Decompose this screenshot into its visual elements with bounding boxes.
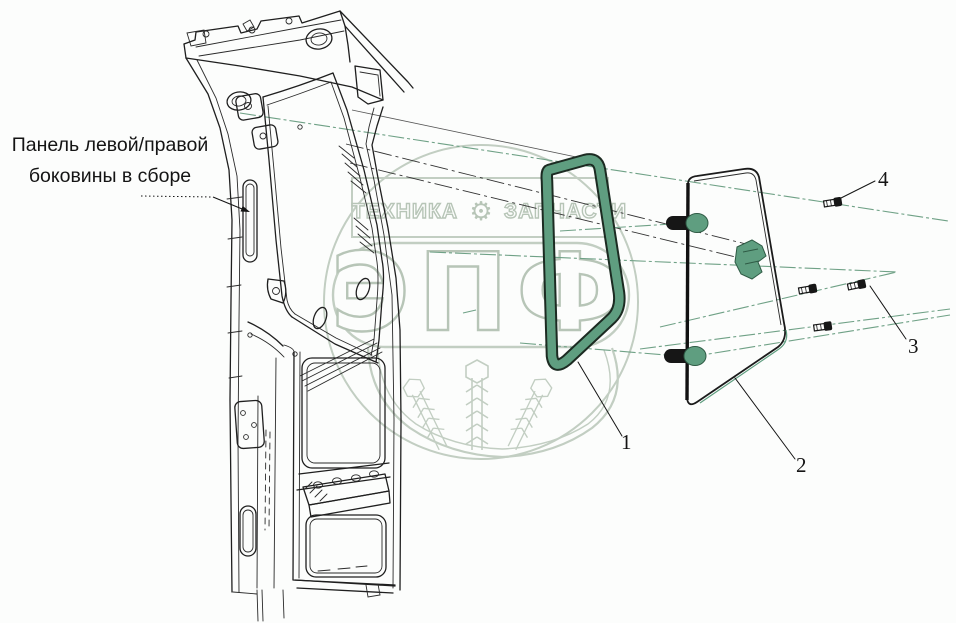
screw-icon-4 [823, 197, 842, 209]
mounting-screws [798, 197, 866, 333]
glass-center-clip [735, 240, 766, 279]
stud-bushing-bottom [684, 347, 706, 366]
diagram-canvas: ТЕХНИКА ⚙ ЗАПЧАСТИ ЭПФ [0, 0, 956, 623]
callout-2-number: 2 [796, 453, 807, 477]
part-label: Панель левой/правой боковины в сборе [12, 134, 250, 212]
watermark: ТЕХНИКА ⚙ ЗАПЧАСТИ ЭПФ [324, 145, 638, 459]
wheat-emblem [401, 360, 554, 452]
window-glass [664, 169, 787, 405]
screw-icon-3a [847, 279, 866, 292]
part-label-leader-dotted [141, 196, 213, 197]
callout-4: 4 [841, 167, 889, 198]
panel-roof-rail [184, 11, 413, 112]
callout-1-number: 1 [621, 430, 632, 454]
callout-4-leader [841, 181, 875, 198]
callout-3-leader [870, 286, 906, 339]
panel-door-opening [257, 352, 395, 621]
callout-2: 2 [735, 378, 807, 477]
part-label-arrowhead [241, 206, 251, 212]
callout-1: 1 [578, 362, 632, 454]
callout-4-number: 4 [878, 167, 889, 191]
wheat-ear-right [504, 375, 554, 452]
exploded-parts-diagram-page: ТЕХНИКА ⚙ ЗАПЧАСТИ ЭПФ [0, 0, 956, 623]
panel-mid-section [248, 322, 297, 357]
callout-3: 3 [870, 286, 919, 358]
screw-icon-3b [798, 283, 817, 295]
wheat-ear-center [466, 360, 488, 450]
callout-2-leader [735, 378, 795, 459]
gear-icon: ⚙ [469, 197, 492, 227]
callout-1-leader [578, 362, 622, 436]
screw-icon-3c [813, 321, 832, 332]
stud-bushing-top [686, 214, 708, 233]
pillar-slot [243, 180, 257, 262]
glass-left-edge [687, 183, 688, 400]
part-label-line1: Панель левой/правой [12, 134, 208, 156]
glass-outline [687, 169, 785, 405]
part-label-line2: боковины в сборе [29, 165, 191, 187]
callout-3-number: 3 [908, 334, 919, 358]
